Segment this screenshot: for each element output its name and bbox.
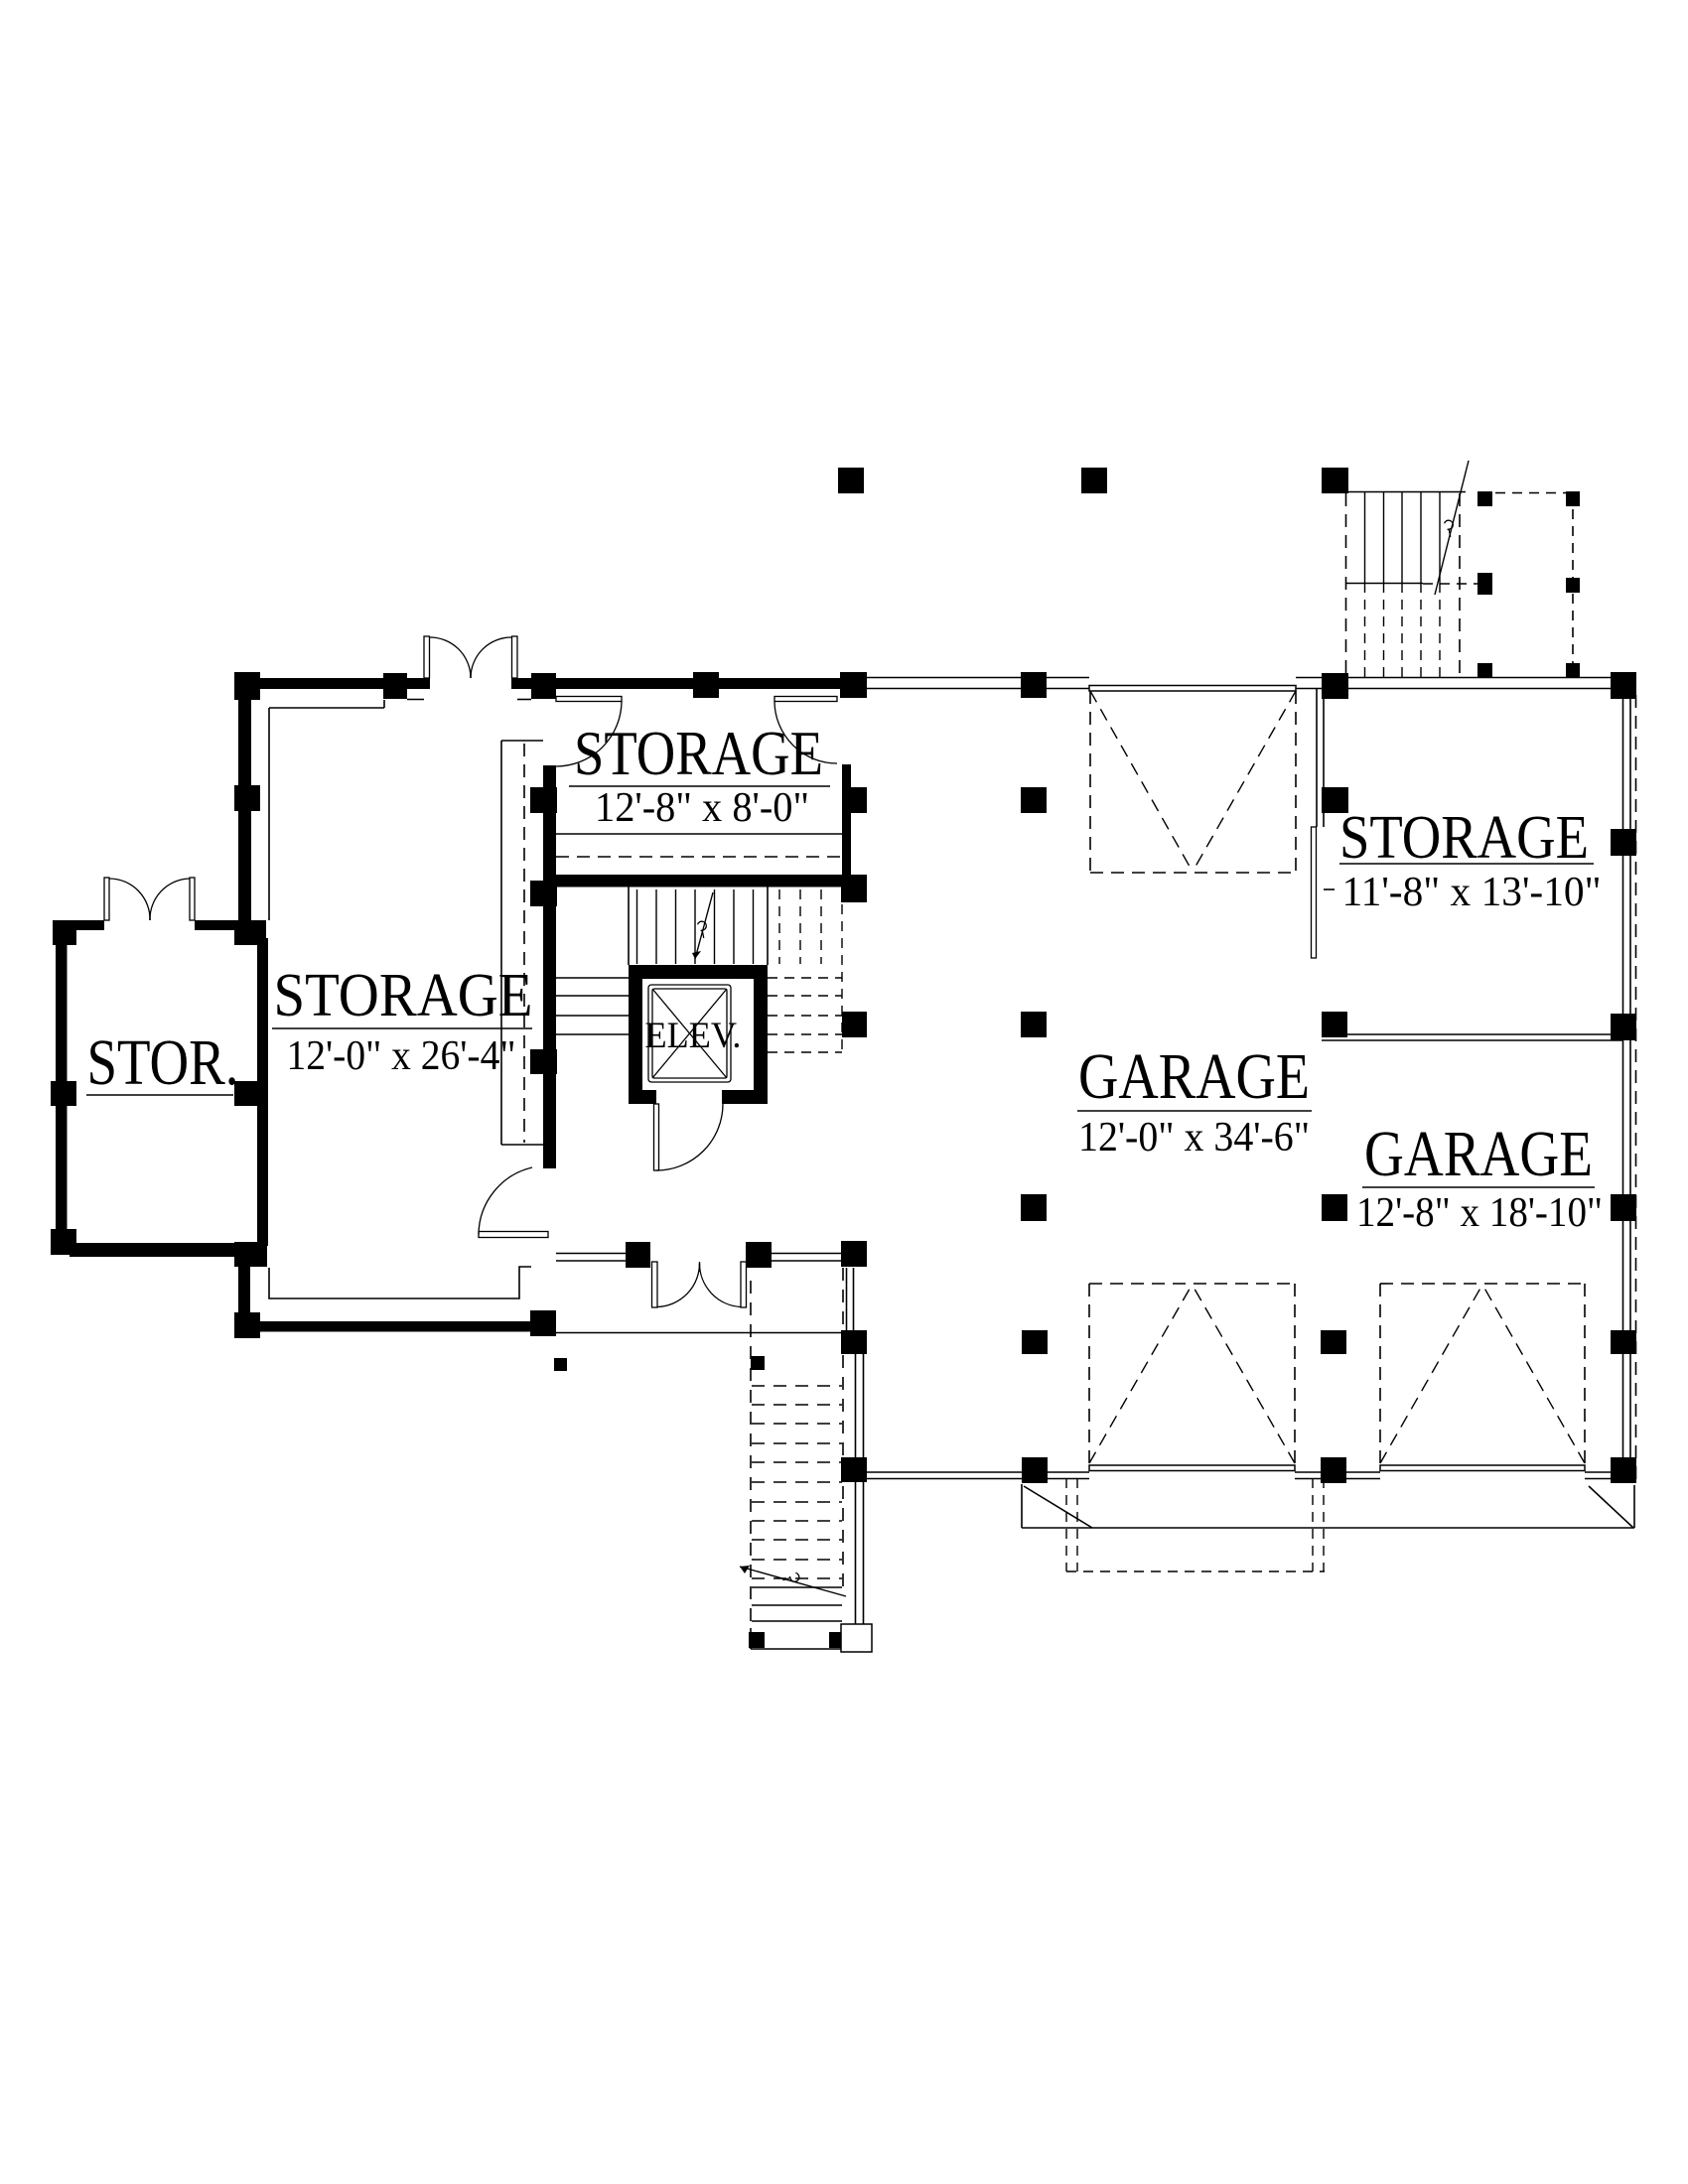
svg-text:STORAGE: STORAGE	[574, 719, 823, 788]
svg-text:STOR.: STOR.	[87, 1026, 239, 1099]
svg-text:ELEV.: ELEV.	[645, 1016, 742, 1056]
svg-text:12'-8" x 8'-0": 12'-8" x 8'-0"	[595, 785, 809, 831]
svg-text:STORAGE: STORAGE	[274, 962, 533, 1029]
svg-text:12'-0" x 34'-6": 12'-0" x 34'-6"	[1078, 1115, 1310, 1160]
svg-text:12'-0" x 26'-4": 12'-0" x 26'-4"	[287, 1033, 516, 1079]
svg-text:GARAGE: GARAGE	[1364, 1118, 1593, 1190]
svg-text:GARAGE: GARAGE	[1078, 1040, 1310, 1113]
svg-text:11'-8" x 13'-10": 11'-8" x 13'-10"	[1342, 870, 1602, 915]
svg-text:STORAGE: STORAGE	[1339, 804, 1589, 872]
svg-text:12'-8" x 18'-10": 12'-8" x 18'-10"	[1356, 1190, 1603, 1236]
